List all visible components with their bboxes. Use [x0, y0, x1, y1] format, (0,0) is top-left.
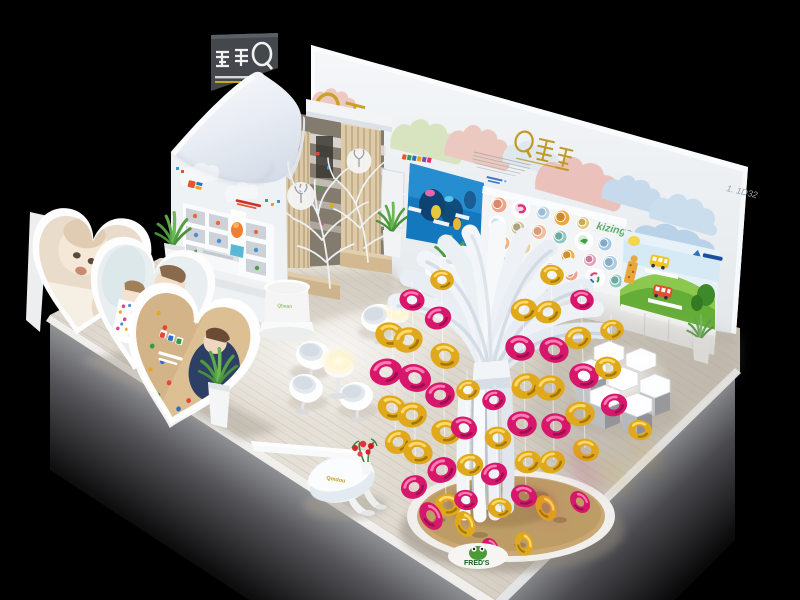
svg-text:Qbean: Qbean	[277, 303, 293, 310]
svg-text:FRED'S: FRED'S	[464, 560, 490, 567]
